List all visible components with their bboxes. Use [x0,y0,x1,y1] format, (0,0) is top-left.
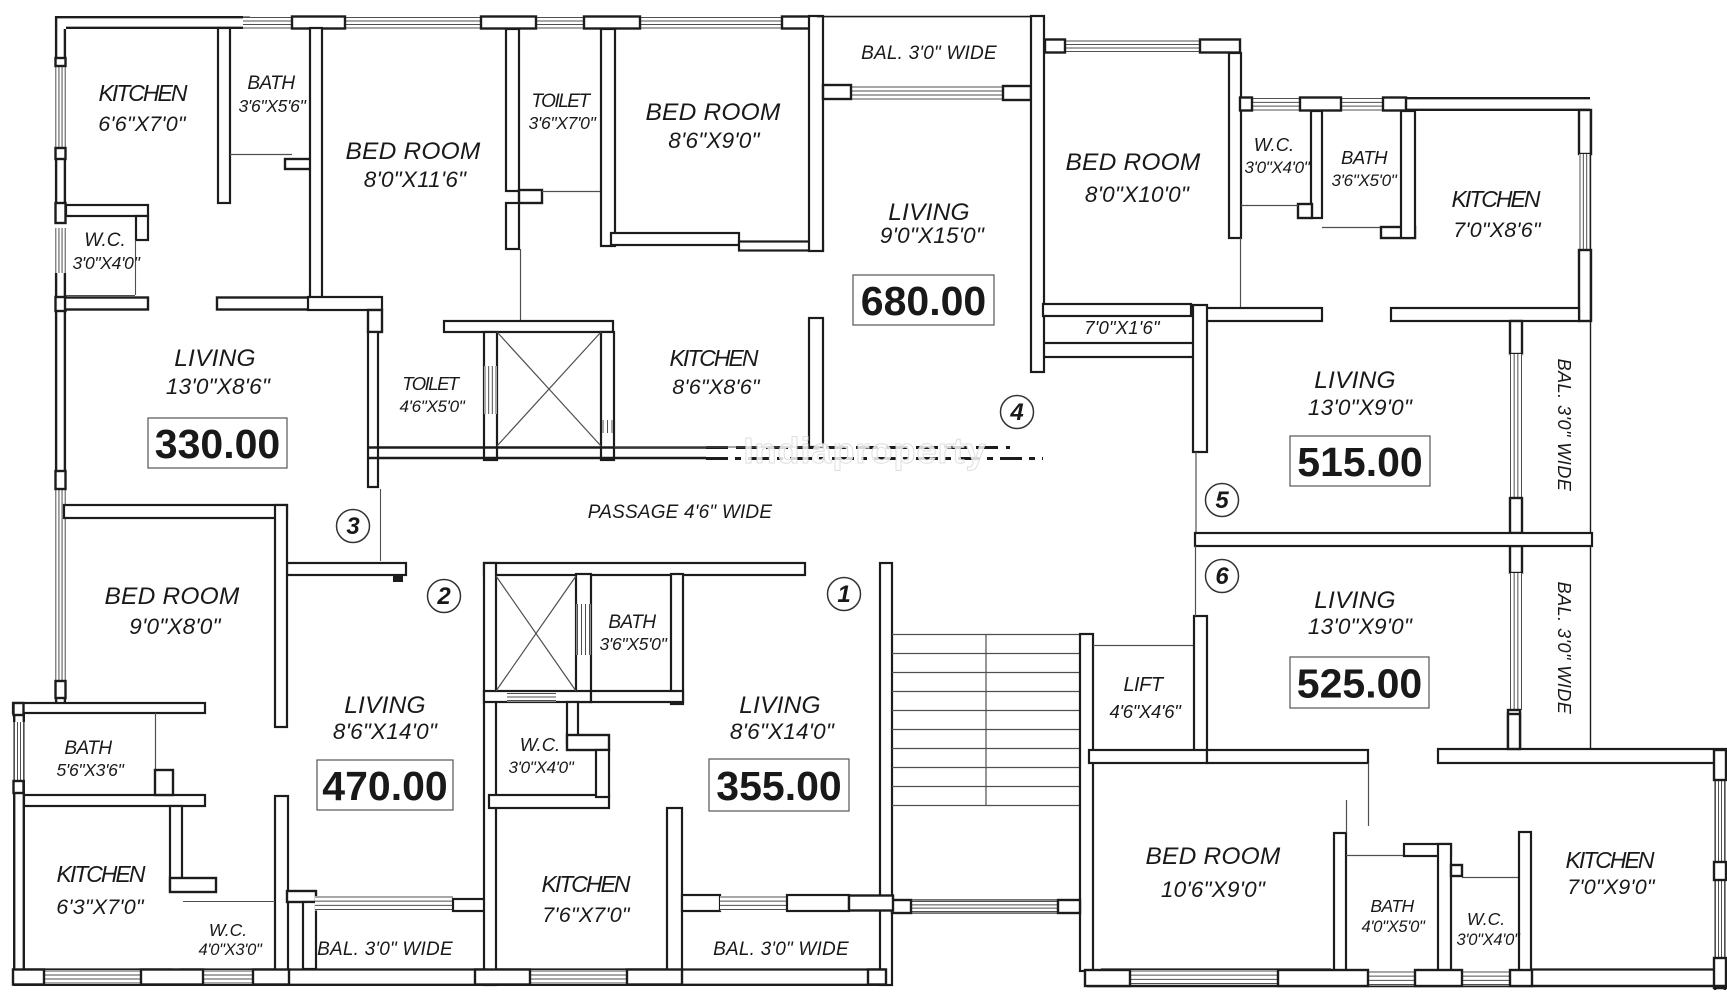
svg-text:BATH: BATH [64,738,112,759]
svg-text:KITCHEN: KITCHEN [542,871,631,897]
svg-text:LIVING: LIVING [174,345,256,372]
svg-text:8'6"X14'0": 8'6"X14'0" [730,719,835,744]
svg-text:4'6"X4'6": 4'6"X4'6" [1110,701,1183,722]
svg-text:W.C.: W.C. [209,920,247,940]
svg-text:9'0"X15'0": 9'0"X15'0" [880,223,985,248]
svg-text:BAL. 3'0" WIDE: BAL. 3'0" WIDE [861,43,997,64]
svg-text:6'3"X7'0": 6'3"X7'0" [56,895,145,919]
svg-text:3'0"X4'0": 3'0"X4'0" [1456,931,1520,949]
svg-text:BATH: BATH [1370,896,1414,916]
svg-text:Indiaproperty: Indiaproperty [743,430,986,471]
svg-text:3'0"X4'0": 3'0"X4'0" [508,758,574,777]
svg-text:3: 3 [346,513,360,540]
svg-text:330.00: 330.00 [155,421,280,467]
svg-text:LIVING: LIVING [888,199,970,226]
svg-text:W.C.: W.C. [84,230,126,251]
svg-text:LIVING: LIVING [1314,587,1396,614]
svg-text:W.C.: W.C. [1254,134,1294,155]
svg-text:470.00: 470.00 [322,763,447,809]
svg-text:BED ROOM: BED ROOM [646,99,781,126]
svg-text:7'0"X9'0": 7'0"X9'0" [1567,875,1656,899]
svg-text:515.00: 515.00 [1297,439,1422,485]
svg-text:BED ROOM: BED ROOM [105,583,240,610]
svg-text:9'0"X8'0": 9'0"X8'0" [129,614,221,639]
svg-text:10'6"X9'0": 10'6"X9'0" [1161,877,1266,902]
svg-text:TOILET: TOILET [531,91,591,112]
svg-text:8'6"X14'0": 8'6"X14'0" [333,719,438,744]
svg-text:3'6"X7'0": 3'6"X7'0" [528,113,596,133]
svg-text:13'0"X9'0": 13'0"X9'0" [1308,614,1413,639]
svg-text:BED ROOM: BED ROOM [346,138,481,165]
svg-text:3'6"X5'6": 3'6"X5'6" [238,96,306,116]
svg-text:BED ROOM: BED ROOM [1066,149,1201,176]
svg-text:BAL. 3'0" WIDE: BAL. 3'0" WIDE [317,939,453,960]
svg-text:BATH: BATH [247,73,295,94]
svg-text:TOILET: TOILET [402,373,461,394]
svg-text:13'0"X9'0": 13'0"X9'0" [1308,395,1413,420]
svg-text:BATH: BATH [608,612,656,633]
svg-text:13'0"X8'6": 13'0"X8'6" [166,374,271,399]
svg-text:5'6"X3'6": 5'6"X3'6" [56,760,124,780]
svg-text:KITCHEN: KITCHEN [1566,847,1655,873]
svg-text:KITCHEN: KITCHEN [99,80,188,106]
svg-text:7'0"X8'6": 7'0"X8'6" [1453,218,1542,242]
svg-text:8'0"X11'6": 8'0"X11'6" [364,167,467,192]
svg-text:BAL. 3'0" WIDE: BAL. 3'0" WIDE [1554,359,1574,492]
svg-text:3'6"X5'0": 3'6"X5'0" [1331,171,1397,190]
svg-text:W.C.: W.C. [1467,909,1505,929]
svg-text:LIVING: LIVING [344,692,426,719]
svg-text:W.C.: W.C. [520,734,560,755]
svg-text:4'0"X5'0": 4'0"X5'0" [1361,918,1425,936]
svg-text:LIFT: LIFT [1123,674,1164,696]
svg-text:8'6"X9'0": 8'6"X9'0" [668,128,760,153]
svg-text:4'6"X5'0": 4'6"X5'0" [399,397,465,416]
svg-text:6: 6 [1215,563,1229,590]
svg-text:8'6"X8'6": 8'6"X8'6" [672,375,761,399]
svg-text:6'6"X7'0": 6'6"X7'0" [98,112,187,136]
svg-text:4: 4 [1009,399,1023,426]
svg-text:BED ROOM: BED ROOM [1146,843,1281,870]
svg-text:7'0"X1'6": 7'0"X1'6" [1084,317,1161,338]
svg-text:BATH: BATH [1341,147,1388,168]
svg-text:3'0"X4'0": 3'0"X4'0" [72,253,140,273]
svg-text:PASSAGE 4'6" WIDE: PASSAGE 4'6" WIDE [588,502,773,523]
svg-text:3'6"X5'0": 3'6"X5'0" [599,634,667,654]
svg-text:5: 5 [1215,487,1229,514]
svg-text:KITCHEN: KITCHEN [57,861,146,887]
svg-text:BAL. 3'0" WIDE: BAL. 3'0" WIDE [1554,582,1574,715]
svg-text:355.00: 355.00 [716,763,841,809]
svg-text:KITCHEN: KITCHEN [670,345,759,371]
svg-text:7'6"X7'0": 7'6"X7'0" [542,903,631,927]
svg-text:1: 1 [837,581,850,608]
svg-text:LIVING: LIVING [1314,367,1396,394]
svg-text:BAL. 3'0" WIDE: BAL. 3'0" WIDE [713,939,849,960]
svg-text:4'0"X3'0": 4'0"X3'0" [198,941,262,959]
svg-text:680.00: 680.00 [861,278,986,324]
svg-text:8'0"X10'0": 8'0"X10'0" [1085,182,1190,207]
svg-text:2: 2 [436,583,451,610]
svg-text:525.00: 525.00 [1297,660,1422,706]
svg-text:LIVING: LIVING [739,692,821,719]
svg-text:3'0"X4'0": 3'0"X4'0" [1244,158,1310,177]
svg-text:KITCHEN: KITCHEN [1452,186,1541,212]
